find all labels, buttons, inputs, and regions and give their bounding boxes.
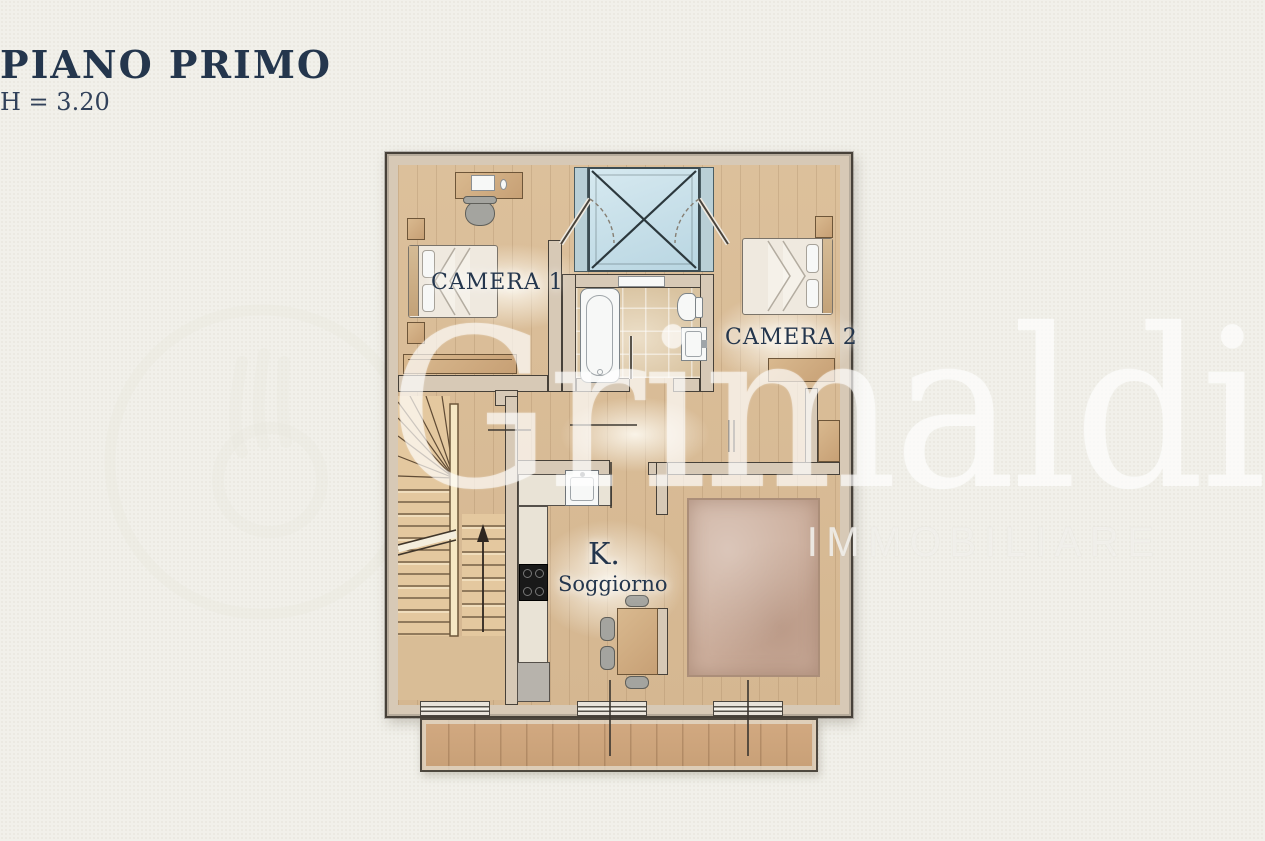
watermark-subbrand: IMMOBILIARE xyxy=(806,518,1162,566)
skylight-cross xyxy=(592,171,696,268)
floor-plan-page: PIANO PRIMO H = 3.20 xyxy=(0,0,1265,841)
label-soggiorno: Soggiorno xyxy=(558,572,667,596)
label-camera2: CAMERA 2 xyxy=(725,325,858,350)
label-camera1: CAMERA 1 xyxy=(431,270,564,295)
door-camera1 xyxy=(561,199,614,244)
floor-height-note: H = 3.20 xyxy=(0,88,1265,116)
floor-plan: CAMERA 1 CAMERA 2 K. Soggiorno xyxy=(385,152,853,772)
label-kitchen: K. xyxy=(588,537,620,572)
agency-logo-watermark xyxy=(92,292,432,632)
page-title: PIANO PRIMO xyxy=(0,42,1265,87)
hallway-marks xyxy=(488,420,734,508)
window-opening-marks xyxy=(610,680,748,756)
door-camera2 xyxy=(675,199,728,244)
plan-linework xyxy=(385,152,853,772)
